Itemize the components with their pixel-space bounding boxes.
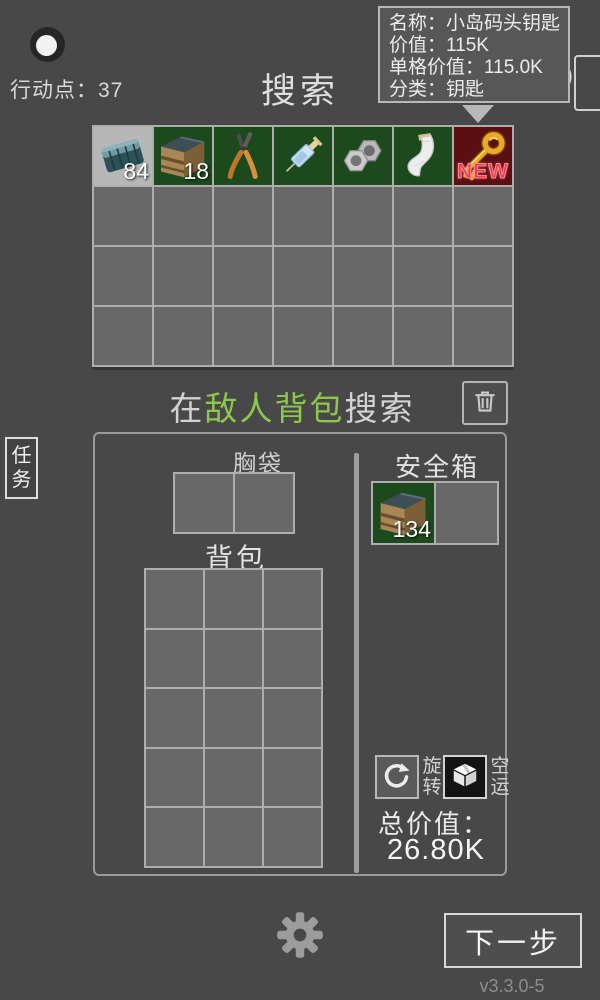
grid-slot[interactable]	[333, 306, 393, 366]
grid-slot[interactable]	[333, 246, 393, 306]
grid-slot[interactable]	[393, 126, 453, 186]
tooltip-line: 价值：115K	[389, 35, 568, 57]
nuts-icon	[336, 129, 389, 182]
panel-scrollbar[interactable]	[354, 453, 359, 873]
grid-slot[interactable]	[145, 807, 204, 867]
grid-slot[interactable]	[333, 186, 393, 246]
airlift-label-char: 空	[490, 756, 509, 777]
grid-slot[interactable]	[145, 569, 204, 629]
airlift-label-char: 运	[490, 777, 509, 798]
grid-slot[interactable]	[93, 246, 153, 306]
status-circle-dot	[36, 35, 57, 56]
total-value: 26.80K	[387, 834, 485, 867]
tooltip-line: 单格价值：115.0K	[389, 57, 568, 79]
grid-slot[interactable]	[204, 688, 263, 748]
grid-slot[interactable]: 134	[372, 482, 435, 544]
page-title: 搜索	[261, 63, 339, 114]
tooltip-line-value: 115.0K	[484, 57, 543, 78]
grid-slot[interactable]	[393, 246, 453, 306]
partially-hidden-button[interactable]	[574, 55, 600, 111]
action-points-value: 37	[98, 79, 123, 102]
item-count: 18	[183, 158, 209, 185]
grid-slot[interactable]	[213, 126, 273, 186]
next-step-button[interactable]: 下一步	[444, 913, 582, 968]
trash-button[interactable]	[462, 381, 508, 425]
search-location-target: 敌人背包	[205, 390, 345, 427]
action-points: 行动点：37	[10, 74, 123, 104]
chest-pocket-grid	[173, 472, 295, 534]
grid-slot[interactable]	[213, 186, 273, 246]
grid-slot[interactable]	[145, 688, 204, 748]
grid-slot[interactable]	[153, 306, 213, 366]
action-points-label: 行动点：	[10, 79, 98, 102]
loadout-panel: 胸袋 背包 安全箱 134 旋转	[93, 432, 507, 876]
grid-slot[interactable]	[263, 629, 322, 689]
grid-slot[interactable]	[174, 473, 234, 533]
grid-slot[interactable]	[453, 306, 513, 366]
grid-slot[interactable]	[204, 629, 263, 689]
grid-slot[interactable]	[273, 246, 333, 306]
backpack-grid	[144, 568, 323, 868]
status-circle-button[interactable]	[30, 27, 65, 62]
grid-slot[interactable]	[453, 246, 513, 306]
trash-icon	[471, 387, 499, 420]
grid-slot[interactable]	[435, 482, 498, 544]
search-grid: 84 18	[92, 125, 514, 367]
rotate-label: 旋转	[421, 756, 443, 798]
grid-slot[interactable]	[453, 186, 513, 246]
grid-slot[interactable]	[234, 473, 294, 533]
grid-slot[interactable]	[333, 126, 393, 186]
airlift-button[interactable]	[443, 755, 487, 799]
rotate-icon	[382, 760, 412, 795]
search-location-text: 在敌人背包搜索	[170, 382, 415, 430]
tasks-button[interactable]: 任务	[5, 437, 38, 499]
grid-slot[interactable]	[273, 306, 333, 366]
airlift-label: 空运	[489, 756, 511, 798]
grid-slot[interactable]	[204, 569, 263, 629]
item-count: 134	[393, 516, 431, 543]
grid-slot[interactable]	[153, 186, 213, 246]
grid-slot[interactable]	[263, 688, 322, 748]
tasks-button-label: 务	[12, 468, 32, 492]
tooltip-line-label: 分类：	[389, 79, 446, 100]
grid-slot[interactable]	[204, 807, 263, 867]
grid-slot[interactable]	[145, 748, 204, 808]
grid-slot[interactable]: 84	[93, 126, 153, 186]
grid-slot[interactable]	[263, 569, 322, 629]
rotate-button[interactable]	[375, 755, 419, 799]
new-badge: NEW	[454, 160, 512, 184]
grid-slot[interactable]: NEW	[453, 126, 513, 186]
tooltip-line-label: 单格价值：	[389, 57, 484, 78]
grid-slot[interactable]	[273, 186, 333, 246]
gear-icon	[273, 908, 327, 967]
grid-slot[interactable]	[153, 246, 213, 306]
item-count: 84	[123, 158, 149, 185]
tooltip-line-value: 钥匙	[446, 79, 484, 100]
search-location-prefix: 在	[170, 390, 205, 427]
item-tooltip: 名称：小岛码头钥匙价值：115K单格价值：115.0K分类：钥匙	[378, 6, 570, 103]
tooltip-line-value: 115K	[446, 35, 489, 56]
search-location-suffix: 搜索	[345, 390, 415, 427]
tooltip-line-value: 小岛码头钥匙	[446, 13, 560, 34]
grid-slot[interactable]	[393, 306, 453, 366]
grid-slot[interactable]	[393, 186, 453, 246]
pliers-icon	[216, 129, 269, 182]
tooltip-line: 名称：小岛码头钥匙	[389, 13, 568, 35]
rotate-label-char: 转	[422, 777, 441, 798]
grid-slot[interactable]: 18	[153, 126, 213, 186]
version-text: v3.3.0-5	[479, 976, 544, 997]
airlift-box-icon	[450, 760, 480, 795]
rotate-label-char: 旋	[422, 756, 441, 777]
tasks-button-label: 任	[12, 444, 32, 468]
grid-slot[interactable]	[93, 306, 153, 366]
tooltip-line-label: 价值：	[389, 35, 446, 56]
grid-slot[interactable]	[213, 246, 273, 306]
grid-slot[interactable]	[145, 629, 204, 689]
safe-box-label: 安全箱	[395, 447, 479, 484]
syringe-icon	[276, 129, 329, 182]
grid-slot[interactable]	[204, 748, 263, 808]
game-screen: 行动点：37 搜索 ) 名称：小岛码头钥匙价值：115K单格价值：115.0K分…	[0, 0, 600, 1000]
next-step-label: 下一步	[465, 920, 561, 962]
safe-box-grid: 134	[371, 481, 499, 545]
grid-slot[interactable]	[93, 186, 153, 246]
bandage-icon	[396, 129, 449, 182]
grid-slot[interactable]	[263, 748, 322, 808]
grid-slot[interactable]	[273, 126, 333, 186]
tooltip-line: 分类：钥匙	[389, 79, 568, 101]
tooltip-line-label: 名称：	[389, 13, 446, 34]
grid-slot[interactable]	[213, 306, 273, 366]
grid-slot[interactable]	[263, 807, 322, 867]
settings-button[interactable]	[272, 909, 328, 965]
tooltip-tail-icon	[462, 105, 494, 123]
